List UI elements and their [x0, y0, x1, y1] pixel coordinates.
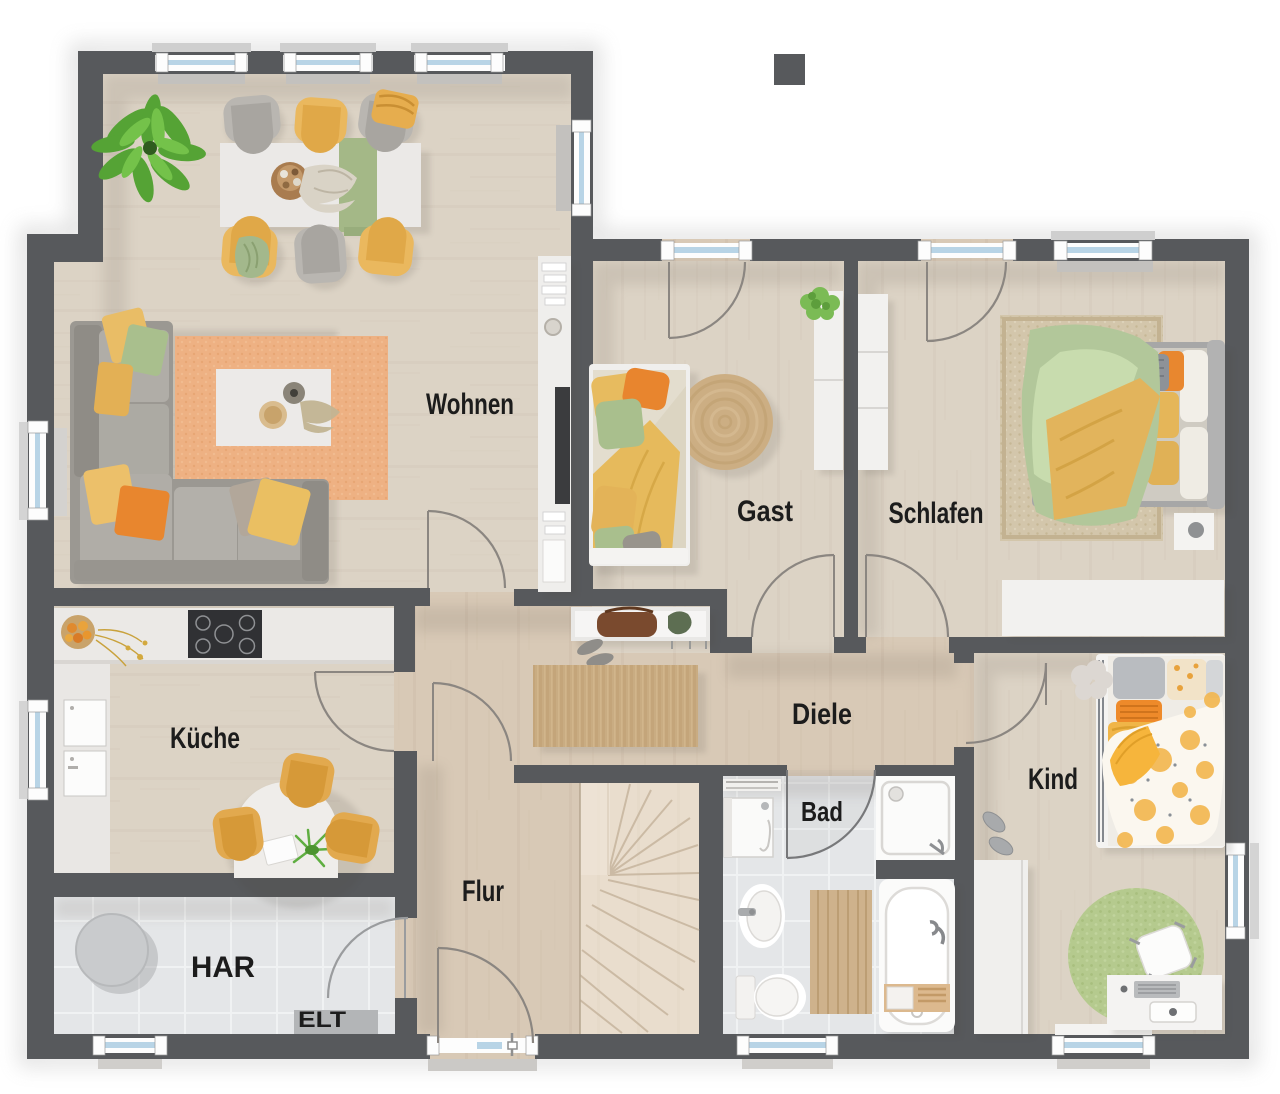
svg-text:HAR: HAR	[191, 951, 255, 984]
svg-text:ELT: ELT	[298, 1007, 347, 1032]
svg-text:Küche: Küche	[170, 722, 240, 755]
svg-text:Schlafen: Schlafen	[889, 497, 984, 530]
svg-text:Wohnen: Wohnen	[426, 388, 514, 421]
svg-text:Kind: Kind	[1028, 763, 1078, 796]
svg-text:Bad: Bad	[801, 796, 843, 827]
svg-text:Flur: Flur	[462, 875, 504, 908]
svg-text:Gast: Gast	[737, 495, 793, 528]
svg-text:Diele: Diele	[792, 698, 852, 731]
